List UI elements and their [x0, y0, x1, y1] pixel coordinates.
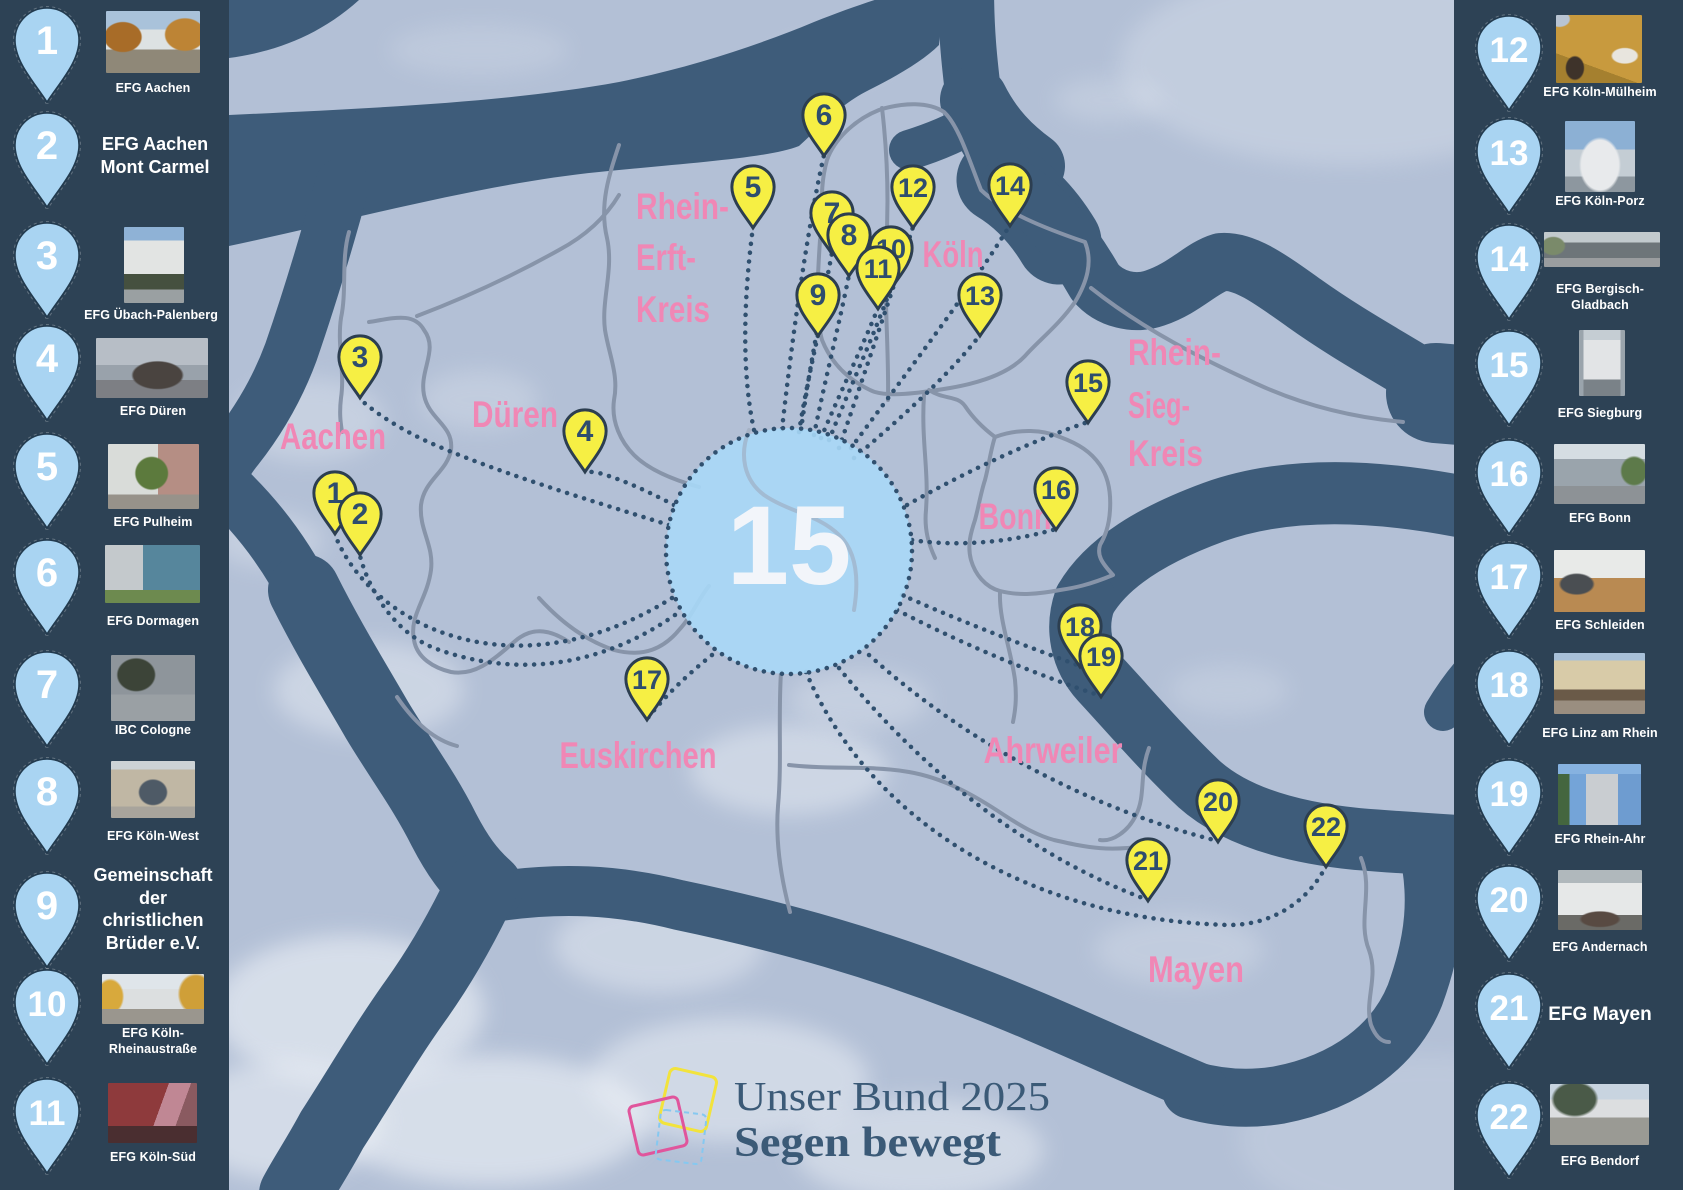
svg-text:12: 12	[1490, 31, 1529, 70]
svg-text:11: 11	[29, 1094, 66, 1133]
svg-text:20: 20	[1203, 787, 1233, 817]
svg-text:13: 13	[965, 281, 995, 311]
svg-text:20: 20	[1490, 881, 1529, 920]
svg-text:6: 6	[36, 551, 58, 595]
svg-text:5: 5	[36, 445, 58, 489]
svg-text:14: 14	[995, 171, 1025, 201]
svg-text:4: 4	[577, 415, 594, 448]
svg-text:Mayen: Mayen	[1148, 949, 1244, 990]
svg-text:Segen bewegt: Segen bewegt	[734, 1120, 1001, 1166]
svg-text:11: 11	[864, 254, 893, 284]
svg-text:Unser Bund 2025: Unser Bund 2025	[734, 1073, 1050, 1119]
svg-text:15: 15	[727, 483, 852, 608]
svg-text:16: 16	[1490, 455, 1529, 494]
svg-text:Kreis: Kreis	[636, 289, 710, 330]
svg-text:17: 17	[1490, 558, 1529, 597]
svg-text:21: 21	[1133, 846, 1163, 876]
svg-text:Sieg-: Sieg-	[1128, 385, 1190, 426]
svg-text:3: 3	[36, 234, 58, 278]
svg-text:Köln: Köln	[923, 234, 984, 275]
svg-text:Euskirchen: Euskirchen	[560, 735, 717, 776]
svg-text:1: 1	[36, 19, 58, 63]
svg-text:2: 2	[36, 124, 58, 168]
svg-text:18: 18	[1490, 666, 1529, 705]
svg-text:21: 21	[1490, 989, 1529, 1028]
svg-text:8: 8	[36, 770, 58, 814]
svg-text:Aachen: Aachen	[280, 416, 386, 457]
svg-text:3: 3	[352, 341, 369, 374]
svg-text:15: 15	[1073, 368, 1103, 398]
svg-text:19: 19	[1490, 775, 1529, 814]
svg-text:8: 8	[841, 219, 858, 252]
svg-text:7: 7	[36, 663, 58, 707]
svg-text:15: 15	[1490, 346, 1529, 385]
svg-text:16: 16	[1041, 475, 1071, 505]
svg-text:19: 19	[1086, 642, 1116, 672]
svg-text:22: 22	[1490, 1098, 1529, 1137]
svg-text:Düren: Düren	[472, 394, 558, 435]
svg-text:22: 22	[1311, 812, 1341, 842]
svg-text:9: 9	[810, 279, 827, 312]
svg-text:6: 6	[816, 99, 833, 132]
svg-text:12: 12	[898, 173, 928, 203]
svg-text:4: 4	[36, 337, 59, 381]
svg-text:10: 10	[28, 985, 67, 1024]
svg-text:Erft-: Erft-	[636, 237, 696, 278]
svg-text:14: 14	[1490, 240, 1529, 279]
svg-text:5: 5	[745, 171, 762, 204]
svg-text:13: 13	[1490, 134, 1529, 173]
svg-text:Rhein-: Rhein-	[636, 186, 729, 227]
svg-text:Kreis: Kreis	[1128, 433, 1203, 474]
svg-text:17: 17	[632, 665, 662, 695]
svg-text:9: 9	[36, 884, 58, 928]
svg-text:2: 2	[352, 498, 369, 531]
svg-text:Ahrweiler: Ahrweiler	[984, 730, 1123, 771]
svg-text:Rhein-: Rhein-	[1128, 332, 1221, 373]
